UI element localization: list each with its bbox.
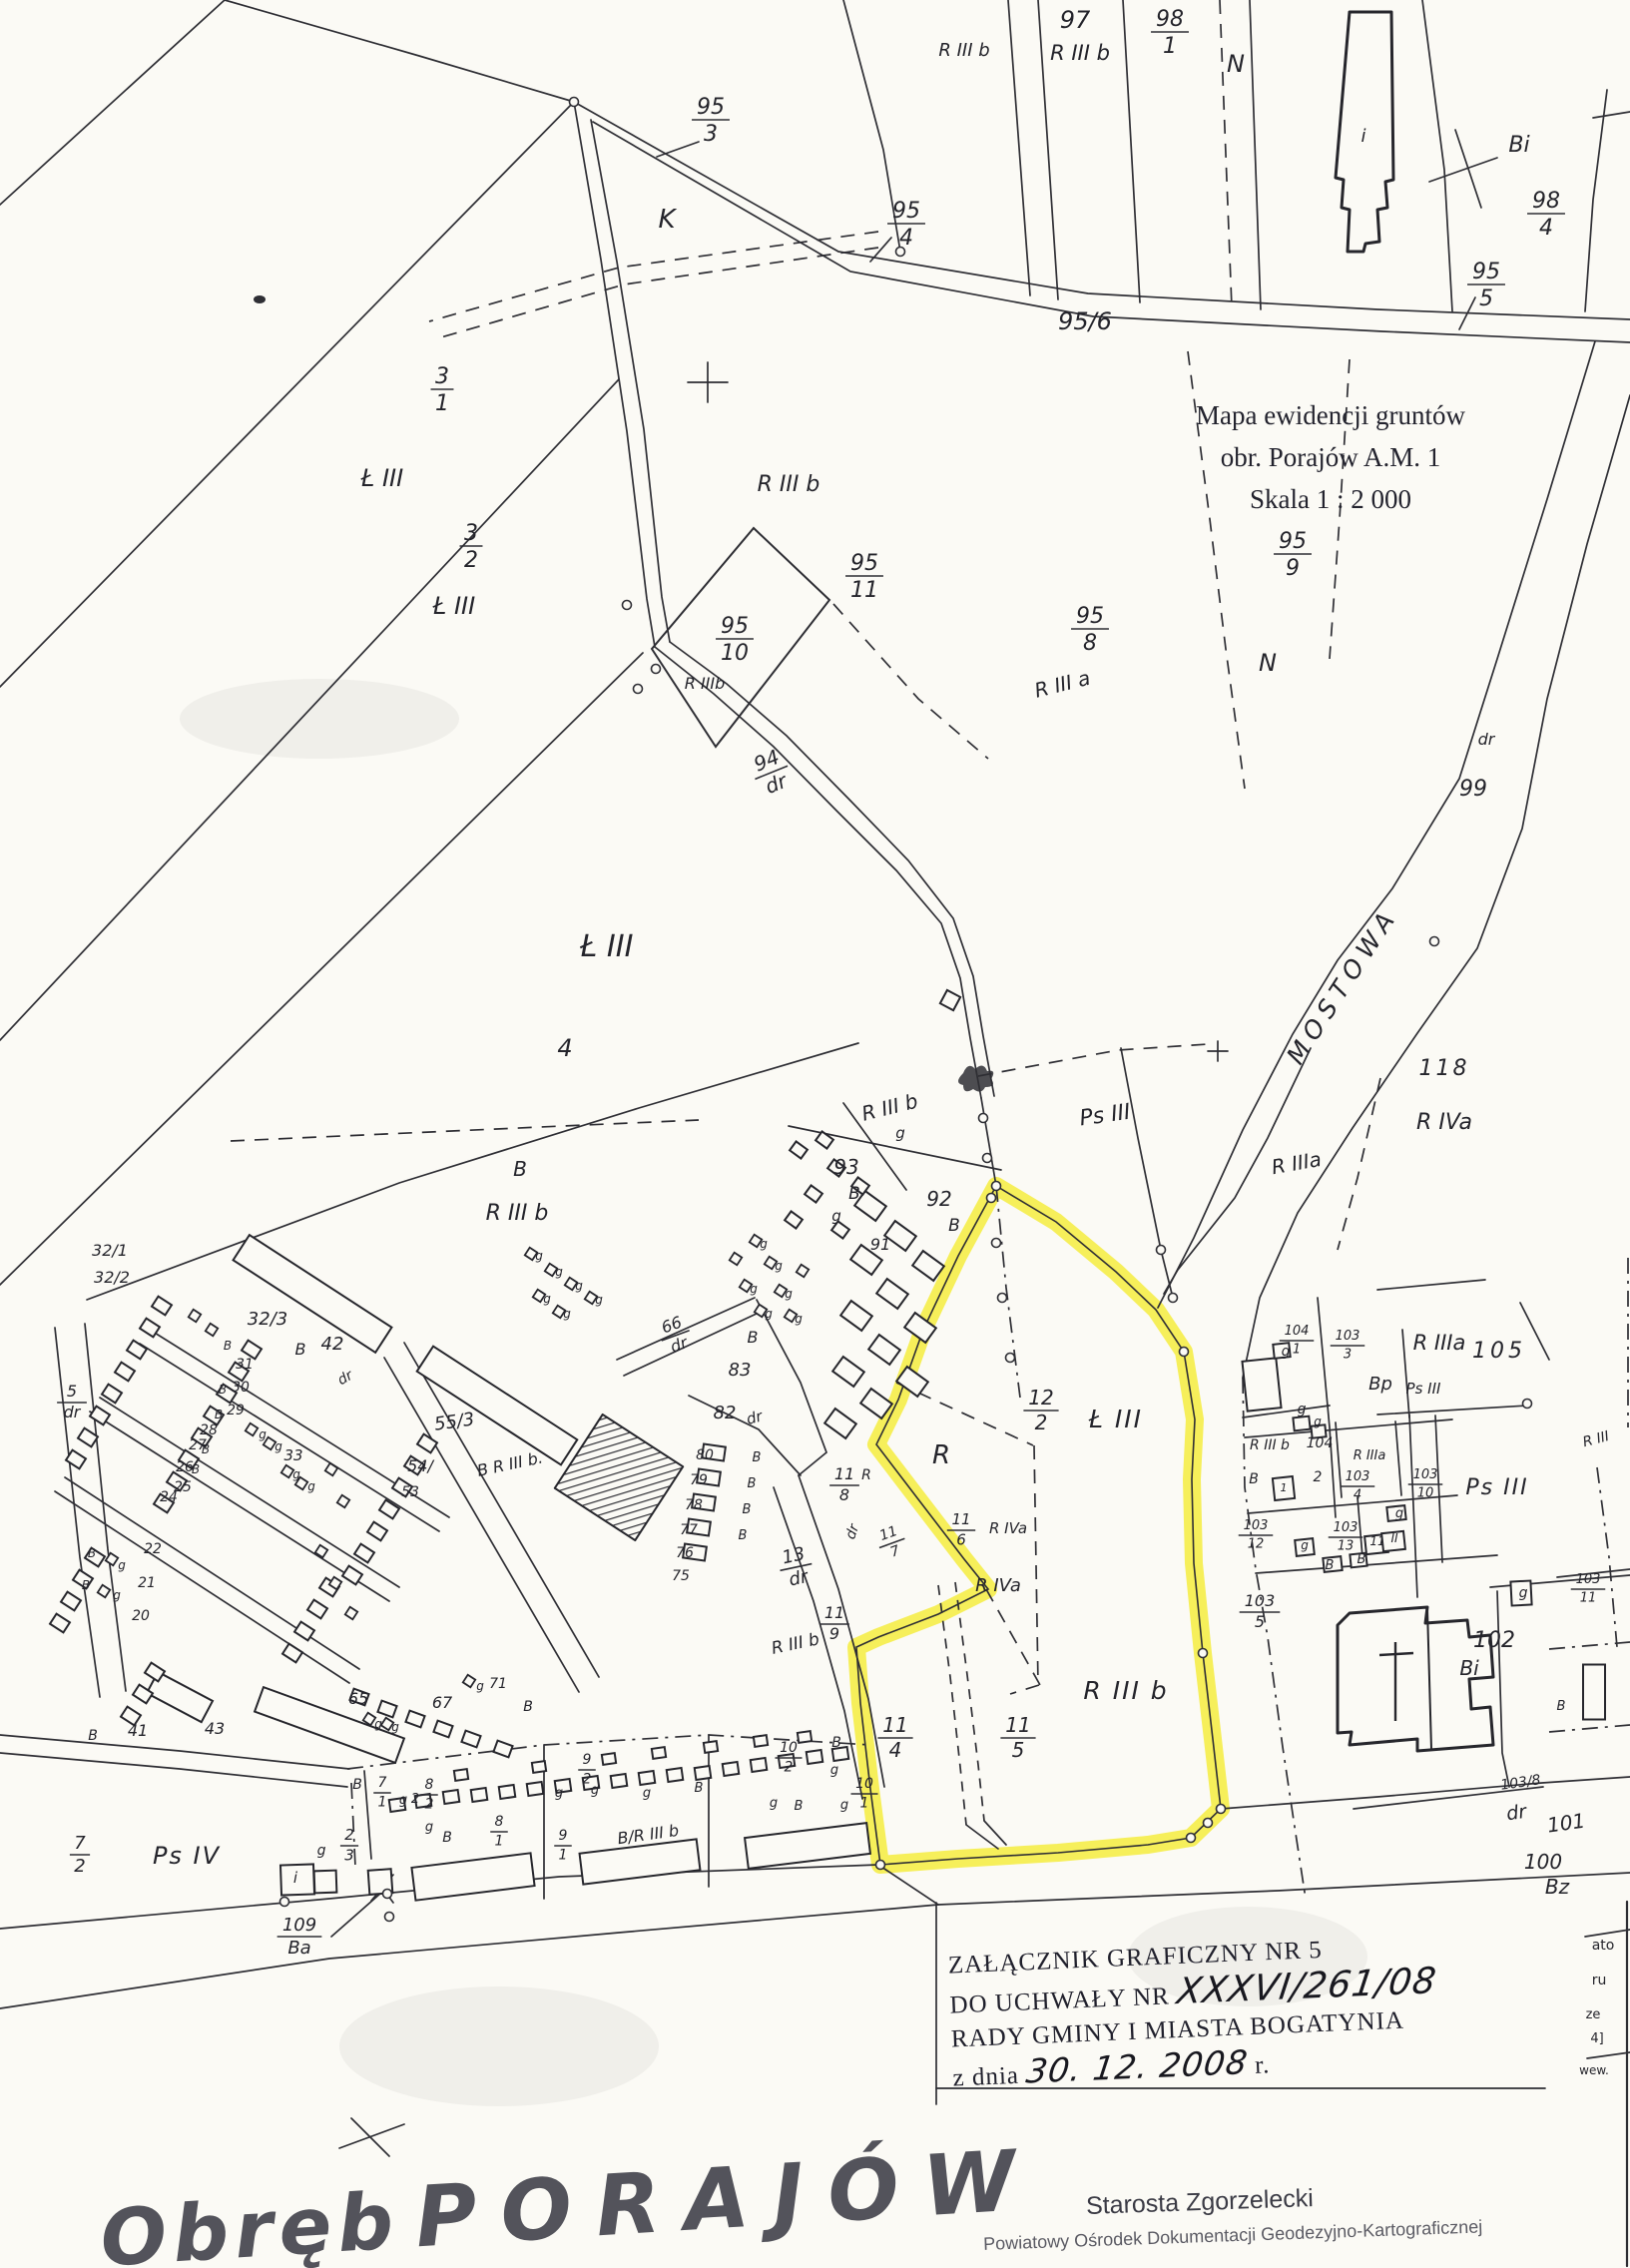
parcel-label: B <box>202 1442 210 1456</box>
svg-text:2: 2 <box>344 1826 354 1844</box>
parcel-label: dr <box>1505 1801 1529 1826</box>
parcel-label: g <box>591 1783 599 1798</box>
parcel-label: Ł III <box>1088 1405 1143 1433</box>
parcel-label: MOSTOWA <box>1281 901 1403 1069</box>
parcel-fraction: 72 <box>70 1833 90 1877</box>
svg-text:1: 1 <box>860 1795 869 1811</box>
parcel-label: 31 <box>236 1357 254 1373</box>
svg-text:5: 5 <box>67 1382 77 1401</box>
svg-text:1: 1 <box>559 1847 568 1863</box>
map-title-line2: obr. Porajów A.M. 1 <box>1126 437 1535 479</box>
parcel-label: 93 <box>833 1155 858 1179</box>
buildings-layer <box>50 990 1605 1901</box>
parcel-label: 83 <box>729 1360 752 1381</box>
parcel-fraction: 954 <box>887 199 925 251</box>
svg-text:95: 95 <box>1076 604 1104 629</box>
parcel-label: B <box>442 1830 452 1846</box>
labels-layer: 97R III bNR III biBi95/6KŁ IIIŁ IIIR III… <box>82 6 1614 2077</box>
parcel-label: 1 <box>1281 1481 1288 1494</box>
parcel-fraction: 1035 <box>1240 1591 1281 1631</box>
parcel-label: 24 <box>160 1489 178 1505</box>
parcel-fraction: 10313 <box>1329 1520 1363 1553</box>
parcel-label: ze <box>1586 2007 1601 2022</box>
map-canvas: 97R III bNR III biBi95/6KŁ IIIŁ IIIR III… <box>0 0 1630 2268</box>
parcel-label: Ps III <box>1406 1380 1441 1398</box>
parcel-label: 79 <box>690 1472 708 1488</box>
svg-text:1: 1 <box>1163 34 1177 59</box>
parcel-label: 105 <box>1472 1339 1526 1364</box>
parcel-label: B <box>219 1383 227 1397</box>
parcel-label: B <box>523 1699 533 1715</box>
svg-text:9: 9 <box>559 1828 568 1844</box>
parcel-label: B R III b. <box>475 1447 544 1479</box>
parcel-label: 4 <box>557 1034 572 1062</box>
svg-text:2: 2 <box>785 1759 794 1775</box>
parcel-label: g <box>555 1265 563 1279</box>
parcel-label: B <box>215 1408 223 1421</box>
parcel-label: g <box>1298 1402 1307 1417</box>
parcel-label: g <box>595 1293 603 1307</box>
svg-text:95: 95 <box>1279 529 1307 554</box>
parcel-fraction: 118 <box>829 1464 859 1504</box>
parcel-label: 30 <box>232 1380 250 1396</box>
parcel-fraction: 122 <box>1023 1386 1058 1434</box>
parcel-label: B <box>82 1578 90 1592</box>
parcel-fraction: 9511 <box>845 551 883 603</box>
svg-text:12: 12 <box>1028 1386 1053 1410</box>
attachment-line2-prefix: DO UCHWAŁY NR <box>949 1983 1170 2018</box>
parcel-label: R IIIa <box>1413 1331 1466 1355</box>
parcel-label: g <box>292 1467 300 1481</box>
svg-text:7: 7 <box>378 1775 387 1791</box>
parcel-label: ru <box>1592 1973 1607 1988</box>
svg-text:103: 103 <box>1576 1572 1601 1587</box>
parcel-fraction: 71 <box>373 1775 391 1810</box>
parcel-label: g <box>1301 1538 1309 1552</box>
parcel-label: 20 <box>132 1608 150 1624</box>
parcel-fraction: 117 <box>873 1521 910 1563</box>
parcel-label: g <box>476 1679 484 1693</box>
parcel-fraction: 958 <box>1071 604 1109 656</box>
parcel-label: g <box>113 1588 121 1602</box>
map-title-block: Mapa ewidencji gruntów obr. Porajów A.M.… <box>1126 395 1535 521</box>
parcel-label: Bi <box>1508 133 1529 158</box>
svg-text:103: 103 <box>1244 1518 1269 1533</box>
svg-text:95: 95 <box>697 95 725 120</box>
parcel-label: 103/8 <box>1499 1772 1541 1793</box>
svg-text:2: 2 <box>425 1796 434 1812</box>
attachment-date-handwritten: 30. 12. 2008 <box>1024 2045 1250 2088</box>
parcel-label: 91 <box>870 1235 890 1254</box>
parcel-fraction: 81 <box>490 1814 508 1849</box>
parcel-label: g <box>374 1717 382 1731</box>
svg-text:8: 8 <box>839 1485 849 1504</box>
dashed-lines <box>231 0 1380 1825</box>
parcel-label: 71 <box>489 1676 507 1692</box>
parcel-label: g <box>1282 1344 1291 1360</box>
parcel-label: 118 <box>1419 1056 1470 1081</box>
svg-text:10: 10 <box>780 1740 798 1756</box>
parcel-label: 75 <box>672 1568 690 1584</box>
parcel-label: 53 <box>401 1484 419 1500</box>
parcel-label: B <box>513 1157 527 1181</box>
parcel-label: Ł III <box>580 929 634 964</box>
map-title-line3: Skala 1 : 2 000 <box>1126 479 1535 521</box>
parcel-label: B <box>88 1546 96 1560</box>
parcel-label: R <box>861 1467 871 1483</box>
cross-icon <box>1379 1642 1413 1721</box>
parcel-label: 22 <box>144 1541 162 1557</box>
parcel-label: g <box>775 1259 783 1273</box>
svg-text:11: 11 <box>1580 1590 1597 1605</box>
parcel-label: Bi <box>1459 1656 1479 1680</box>
parcel-fraction: 984 <box>1527 189 1565 241</box>
parcel-label: g <box>317 1843 326 1859</box>
svg-text:103: 103 <box>1346 1469 1370 1484</box>
attachment-note: ZAŁĄCZNIK GRAFICZNY NR 5 DO UCHWAŁY NR X… <box>947 1925 1552 2096</box>
parcel-label: 80 <box>696 1447 714 1463</box>
parcel-label: g <box>830 1763 838 1778</box>
parcel-label: R III b <box>1083 1676 1168 1705</box>
parcel-label: Bp <box>1368 1374 1392 1395</box>
parcel-label: R IIIa <box>1354 1448 1386 1463</box>
svg-text:8: 8 <box>425 1777 434 1793</box>
highlight-layer <box>856 1186 1221 1865</box>
parcel-label: R III b <box>859 1089 920 1126</box>
parcel-label: g <box>765 1307 773 1321</box>
parcel-label: B <box>295 1340 306 1359</box>
svg-text:11: 11 <box>951 1510 970 1528</box>
svg-text:95: 95 <box>721 614 749 639</box>
parcel-label: K <box>658 205 677 235</box>
parcel-label: 76 <box>676 1545 694 1561</box>
parcel-fraction: 953 <box>692 95 730 147</box>
svg-text:1: 1 <box>495 1833 504 1849</box>
parcel-label: i <box>1360 126 1365 147</box>
svg-text:12: 12 <box>1248 1536 1265 1551</box>
parcel-label: ato <box>1592 1938 1615 1954</box>
parcel-fraction: 115 <box>1000 1713 1035 1762</box>
svg-text:11: 11 <box>850 578 878 603</box>
svg-text:3: 3 <box>344 1846 354 1864</box>
parcel-label: g <box>760 1237 768 1251</box>
svg-text:11: 11 <box>882 1713 907 1737</box>
parcel-label: 95/6 <box>1058 307 1112 335</box>
parcel-label: 55/3 <box>433 1409 476 1434</box>
parcel-fraction: 9510 <box>716 614 754 666</box>
parcel-label: 2 <box>1314 1469 1323 1485</box>
parcel-fraction: 114 <box>877 1713 912 1762</box>
parcel-label: 100 <box>1524 1850 1562 1874</box>
parcel-label: g <box>575 1279 583 1293</box>
parcel-label: B <box>748 1328 759 1347</box>
svg-text:8: 8 <box>1083 631 1097 656</box>
parcel-label: R III b <box>758 472 820 497</box>
parcel-label: Ps IV <box>153 1842 221 1870</box>
svg-text:3: 3 <box>704 122 718 147</box>
parcel-label: g <box>770 1796 778 1811</box>
parcel-label: R IIIb <box>685 674 726 693</box>
parcel-label: 97 <box>1060 6 1091 34</box>
parcel-fraction: 31 <box>431 364 454 416</box>
svg-text:7: 7 <box>74 1833 86 1854</box>
parcel-label: g <box>118 1558 126 1572</box>
parcel-label: B <box>695 1781 704 1796</box>
parcel-label: B <box>739 1528 748 1543</box>
svg-text:1: 1 <box>435 391 449 416</box>
parcel-label: Ps III <box>1465 1475 1528 1500</box>
parcel-label: 28 <box>200 1422 218 1438</box>
svg-text:3: 3 <box>464 521 478 546</box>
parcel-label: R III b <box>1050 41 1110 65</box>
parcel-label: R III b <box>770 1629 821 1659</box>
parcel-label: 42 <box>321 1334 344 1355</box>
svg-text:104: 104 <box>1285 1324 1310 1339</box>
parcel-fraction: 102 <box>775 1740 802 1775</box>
parcel-fraction: 10311 <box>1571 1572 1606 1605</box>
scanned-cadastral-map-page: 97R III bNR III biBi95/6KŁ IIIŁ IIIR III… <box>0 0 1630 2268</box>
parcel-fraction: 1033 <box>1331 1329 1365 1362</box>
parcel-label: 92 <box>926 1187 951 1211</box>
parcel-fraction: 94dr <box>746 743 797 802</box>
parcel-label: 33 <box>283 1446 302 1464</box>
parcel-label: 32/3 <box>248 1309 287 1330</box>
parcel-fraction: 91 <box>554 1828 572 1863</box>
parcel-label: 78 <box>685 1497 703 1513</box>
svg-text:13: 13 <box>1338 1538 1355 1553</box>
svg-text:9: 9 <box>829 1624 839 1643</box>
parcel-label: 32/1 <box>92 1241 128 1260</box>
parcel-label: g <box>643 1786 651 1801</box>
parcel-label: g <box>1314 1415 1322 1428</box>
parcel-label: Bz <box>1545 1875 1570 1899</box>
svg-text:98: 98 <box>1532 189 1560 214</box>
svg-text:95: 95 <box>1472 260 1500 284</box>
svg-text:11: 11 <box>1005 1713 1030 1737</box>
attachment-date-prefix: z dnia <box>952 2061 1019 2091</box>
parcel-label: dr <box>1478 730 1496 749</box>
parcel-label: N <box>1227 50 1245 78</box>
svg-text:Ba: Ba <box>287 1938 310 1959</box>
parcel-label: 41 <box>128 1721 148 1740</box>
parcel-label: 77 <box>680 1522 698 1538</box>
svg-text:13: 13 <box>781 1543 808 1568</box>
parcel-label: g <box>840 1798 848 1813</box>
parcel-label: R III <box>1581 1428 1611 1450</box>
parcel-label: g <box>399 1793 407 1808</box>
svg-text:4: 4 <box>889 1738 902 1762</box>
parcel-label: 32/2 <box>94 1268 130 1287</box>
svg-text:dr: dr <box>787 1566 811 1591</box>
map-title-line1: Mapa ewidencji gruntów <box>1126 395 1535 437</box>
parcel-label: B <box>352 1777 362 1793</box>
svg-text:11: 11 <box>824 1603 844 1622</box>
parcel-label: g <box>750 1282 758 1296</box>
parcel-fraction: 959 <box>1274 529 1312 581</box>
parcel-label: B <box>743 1502 752 1517</box>
parcel-label: B <box>748 1476 757 1491</box>
parcel-label: B <box>192 1462 200 1476</box>
parcel-label: g <box>259 1427 267 1441</box>
parcel-label: g <box>543 1292 551 1306</box>
svg-text:5: 5 <box>1255 1612 1265 1631</box>
parcel-fraction: 981 <box>1151 7 1189 59</box>
parcel-label: 82 <box>714 1403 737 1423</box>
svg-text:11: 11 <box>834 1464 854 1483</box>
parcel-fraction: 109Ba <box>277 1915 322 1959</box>
parcel-label: R III a <box>1032 666 1093 703</box>
svg-text:98: 98 <box>1156 7 1184 32</box>
parcel-label: R III b <box>1250 1437 1290 1453</box>
svg-text:95: 95 <box>850 551 878 576</box>
svg-text:103: 103 <box>1336 1329 1360 1344</box>
svg-text:3: 3 <box>435 364 449 389</box>
svg-text:103: 103 <box>1245 1591 1276 1610</box>
parcel-label: g <box>535 1249 543 1263</box>
svg-text:9: 9 <box>583 1752 592 1768</box>
parcel-label: g <box>785 1287 793 1301</box>
svg-text:2: 2 <box>1035 1411 1048 1434</box>
parcel-label: B <box>753 1450 762 1465</box>
parcel-label: B <box>1557 1699 1566 1714</box>
svg-text:95: 95 <box>892 199 920 224</box>
parcel-label: 65 <box>348 1689 368 1708</box>
parcel-label: 104 <box>1307 1435 1334 1451</box>
parcel-fraction: 66dr <box>655 1311 697 1359</box>
parcel-label: Ł III <box>360 464 403 492</box>
svg-text:dr: dr <box>64 1403 82 1421</box>
ink-blot <box>254 295 266 303</box>
svg-text:10: 10 <box>855 1776 873 1792</box>
parcel-label: B <box>831 1735 841 1751</box>
parcel-label: 43 <box>205 1719 225 1738</box>
parcel-label: dr <box>745 1407 766 1428</box>
parcel-label: R III b <box>938 40 989 61</box>
parcel-label: 101 <box>1545 1809 1586 1838</box>
parcel-label: dr <box>842 1521 862 1541</box>
svg-text:109: 109 <box>282 1915 316 1936</box>
obreb-stamp-word1: Obręb <box>98 2177 401 2268</box>
svg-text:1: 1 <box>378 1794 387 1810</box>
attachment-resolution-number-handwritten: XXXVI/261/08 <box>1174 1964 1438 2010</box>
parcel-fraction: 13dr <box>776 1542 816 1592</box>
attachment-date-suffix: r. <box>1255 2051 1271 2079</box>
parcel-label: g <box>795 1312 803 1326</box>
parcel-label: g <box>563 1307 571 1321</box>
svg-text:103: 103 <box>1334 1520 1358 1535</box>
parcel-label: dr <box>335 1367 357 1389</box>
parcel-label: N <box>1259 649 1277 677</box>
parcel-label: g <box>1395 1506 1403 1521</box>
parcel-label: B <box>1249 1471 1259 1487</box>
parcel-label: g <box>895 1124 905 1142</box>
parcel-label: R IVa <box>975 1575 1021 1596</box>
svg-text:4: 4 <box>1354 1487 1361 1502</box>
parcel-label: g <box>1519 1585 1528 1601</box>
svg-text:9: 9 <box>1286 556 1300 581</box>
parcel-label: g <box>555 1786 563 1801</box>
parcel-label: B <box>1326 1558 1335 1573</box>
parcel-label: B <box>1358 1552 1366 1567</box>
parcel-label: B <box>848 1184 860 1204</box>
parcel-label: B <box>795 1799 804 1814</box>
parcel-label: B <box>224 1339 232 1353</box>
parcel-label: g <box>307 1479 315 1493</box>
svg-text:3: 3 <box>1344 1347 1352 1362</box>
dense-building-block <box>555 1415 683 1540</box>
parcel-label: R IVa <box>989 1519 1027 1537</box>
svg-text:4: 4 <box>899 226 913 251</box>
parcel-label: 29 <box>227 1403 245 1418</box>
parcel-label: R <box>932 1440 950 1470</box>
parcel-label: B <box>948 1216 960 1236</box>
parcel-label: 11 <box>1369 1534 1384 1548</box>
parcel-label: B <box>88 1728 98 1744</box>
parcel-label: g <box>391 1720 399 1734</box>
parcel-label: 21 <box>138 1575 156 1591</box>
parcel-label: 102 <box>1473 1628 1515 1653</box>
svg-text:6: 6 <box>956 1530 966 1548</box>
svg-text:2: 2 <box>464 548 478 573</box>
parcel-label: R III b <box>486 1201 549 1226</box>
parcel-lines <box>0 0 1630 2266</box>
parcel-label: II <box>1390 1531 1398 1545</box>
parcel-label: Ps III <box>1078 1100 1132 1132</box>
svg-text:10: 10 <box>1417 1485 1434 1500</box>
svg-text:103: 103 <box>1413 1467 1438 1482</box>
parcel-label: wew. <box>1579 2063 1609 2077</box>
svg-text:2: 2 <box>583 1771 592 1787</box>
svg-text:4: 4 <box>1539 216 1553 241</box>
parcel-label: R IVa <box>1416 1110 1472 1135</box>
svg-text:10: 10 <box>721 641 749 666</box>
parcel-label: 67 <box>432 1693 453 1712</box>
parcel-label: g <box>274 1439 282 1453</box>
parcel-fraction: 1034 <box>1341 1469 1375 1502</box>
svg-text:5: 5 <box>1479 286 1493 311</box>
svg-text:2: 2 <box>74 1856 85 1877</box>
svg-text:1: 1 <box>1293 1342 1301 1357</box>
parcel-label: 54/ <box>407 1456 434 1475</box>
parcel-label: g <box>831 1207 841 1225</box>
parcel-label: g <box>425 1820 433 1835</box>
svg-text:5: 5 <box>1012 1738 1025 1762</box>
parcel-label: 99 <box>1459 777 1487 802</box>
parcel-label: 2 <box>411 1792 419 1807</box>
parcel-label: 4] <box>1590 2031 1603 2046</box>
parcel-fraction: 10312 <box>1239 1518 1274 1551</box>
svg-text:8: 8 <box>495 1814 504 1830</box>
parcel-label: Ł III <box>432 592 475 620</box>
tree-symbol <box>958 1065 993 1091</box>
svg-text:7: 7 <box>888 1543 902 1561</box>
parcel-label: R IIIa <box>1270 1147 1324 1179</box>
